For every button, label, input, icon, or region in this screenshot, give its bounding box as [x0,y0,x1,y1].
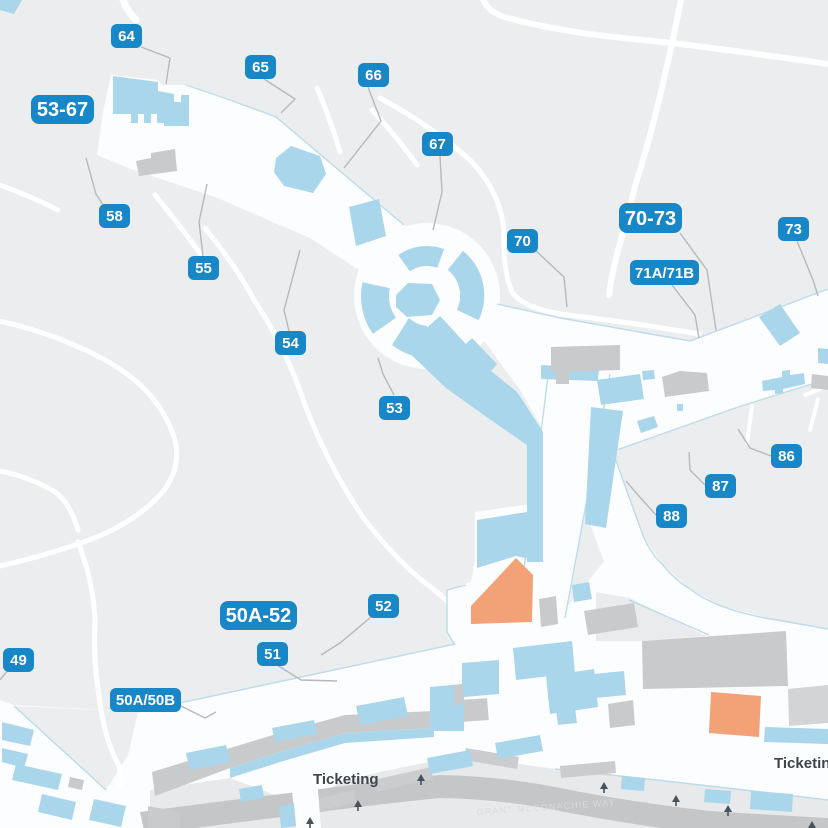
svg-text:73: 73 [785,221,802,238]
svg-text:58: 58 [106,208,123,225]
svg-text:Ticketing: Ticketing [313,771,379,788]
svg-text:53-67: 53-67 [37,99,88,121]
svg-text:53: 53 [386,400,403,417]
svg-text:87: 87 [712,478,729,495]
svg-text:88: 88 [663,508,680,525]
svg-text:Ticketing: Ticketing [774,755,828,772]
svg-text:51: 51 [264,646,281,663]
svg-text:70: 70 [514,233,531,250]
svg-text:49: 49 [10,652,27,669]
svg-text:71A/71B: 71A/71B [635,265,694,282]
svg-text:50A-52: 50A-52 [226,605,292,627]
svg-text:67: 67 [429,136,446,153]
svg-text:54: 54 [282,335,299,352]
svg-text:65: 65 [252,59,269,76]
svg-text:70-73: 70-73 [625,208,676,230]
svg-text:86: 86 [778,448,795,465]
svg-text:55: 55 [195,260,212,277]
svg-text:66: 66 [365,67,382,84]
svg-text:50A/50B: 50A/50B [116,692,175,709]
svg-text:52: 52 [375,598,392,615]
svg-text:64: 64 [118,28,135,45]
